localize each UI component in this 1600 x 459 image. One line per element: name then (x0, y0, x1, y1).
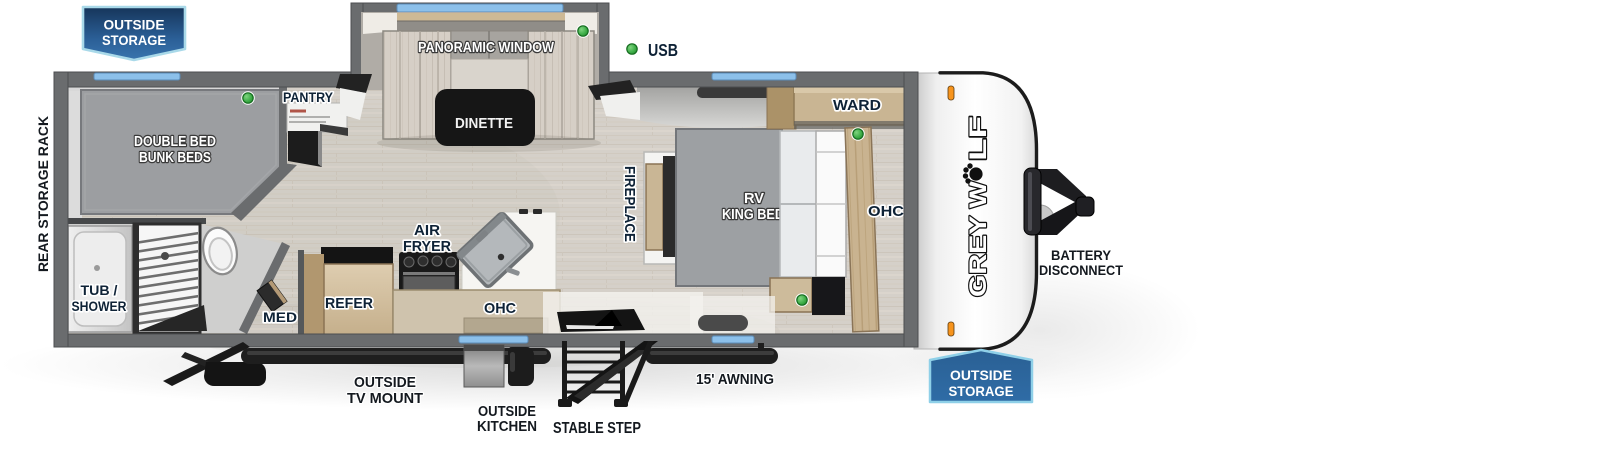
svg-text:15' AWNING: 15' AWNING (696, 371, 774, 388)
svg-text:FIREPLACE: FIREPLACE (621, 166, 637, 242)
svg-text:PANORAMIC WINDOW: PANORAMIC WINDOW (418, 39, 555, 56)
svg-text:USB: USB (648, 40, 678, 60)
svg-text:FRYER: FRYER (403, 238, 451, 255)
svg-text:KITCHEN: KITCHEN (477, 419, 537, 435)
svg-text:DISCONNECT: DISCONNECT (1039, 263, 1124, 278)
svg-text:REAR STORAGE RACK: REAR STORAGE RACK (36, 116, 51, 272)
svg-text:SHOWER: SHOWER (72, 299, 127, 314)
svg-text:OHC: OHC (484, 300, 516, 317)
svg-text:AIR: AIR (414, 222, 440, 239)
svg-text:BATTERY: BATTERY (1051, 248, 1111, 263)
svg-text:OUTSIDE: OUTSIDE (104, 17, 165, 33)
svg-text:BUNK BEDS: BUNK BEDS (139, 150, 211, 166)
svg-text:DINETTE: DINETTE (455, 116, 513, 132)
svg-text:GREY W: GREY W (965, 180, 992, 297)
svg-text:TUB /: TUB / (81, 283, 118, 298)
svg-text:KING BED: KING BED (722, 207, 784, 223)
svg-text:WARD: WARD (833, 97, 881, 114)
svg-text:STORAGE: STORAGE (949, 383, 1014, 399)
svg-text:DOUBLE BED: DOUBLE BED (134, 134, 216, 150)
svg-text:RV: RV (744, 191, 764, 207)
svg-text:OUTSIDE: OUTSIDE (354, 374, 416, 391)
svg-text:TV MOUNT: TV MOUNT (347, 390, 423, 407)
svg-text:MED: MED (263, 309, 297, 325)
svg-text:OHC: OHC (868, 203, 904, 220)
svg-text:STABLE STEP: STABLE STEP (553, 420, 641, 437)
svg-text:REFER: REFER (325, 295, 373, 312)
svg-text:OUTSIDE: OUTSIDE (950, 367, 1012, 383)
svg-text:OUTSIDE: OUTSIDE (478, 404, 536, 420)
svg-text:LF: LF (965, 116, 992, 161)
svg-text:STORAGE: STORAGE (102, 32, 166, 48)
svg-text:PANTRY: PANTRY (283, 90, 333, 105)
